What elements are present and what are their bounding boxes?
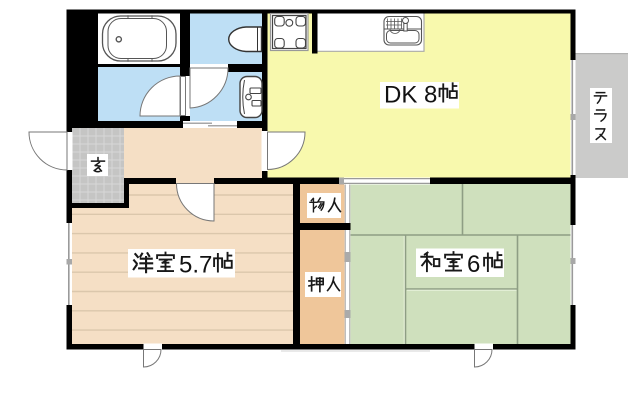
svg-text:6: 6 xyxy=(467,251,480,278)
svg-text:5.7: 5.7 xyxy=(179,252,212,279)
svg-text:DK 8: DK 8 xyxy=(384,82,437,109)
